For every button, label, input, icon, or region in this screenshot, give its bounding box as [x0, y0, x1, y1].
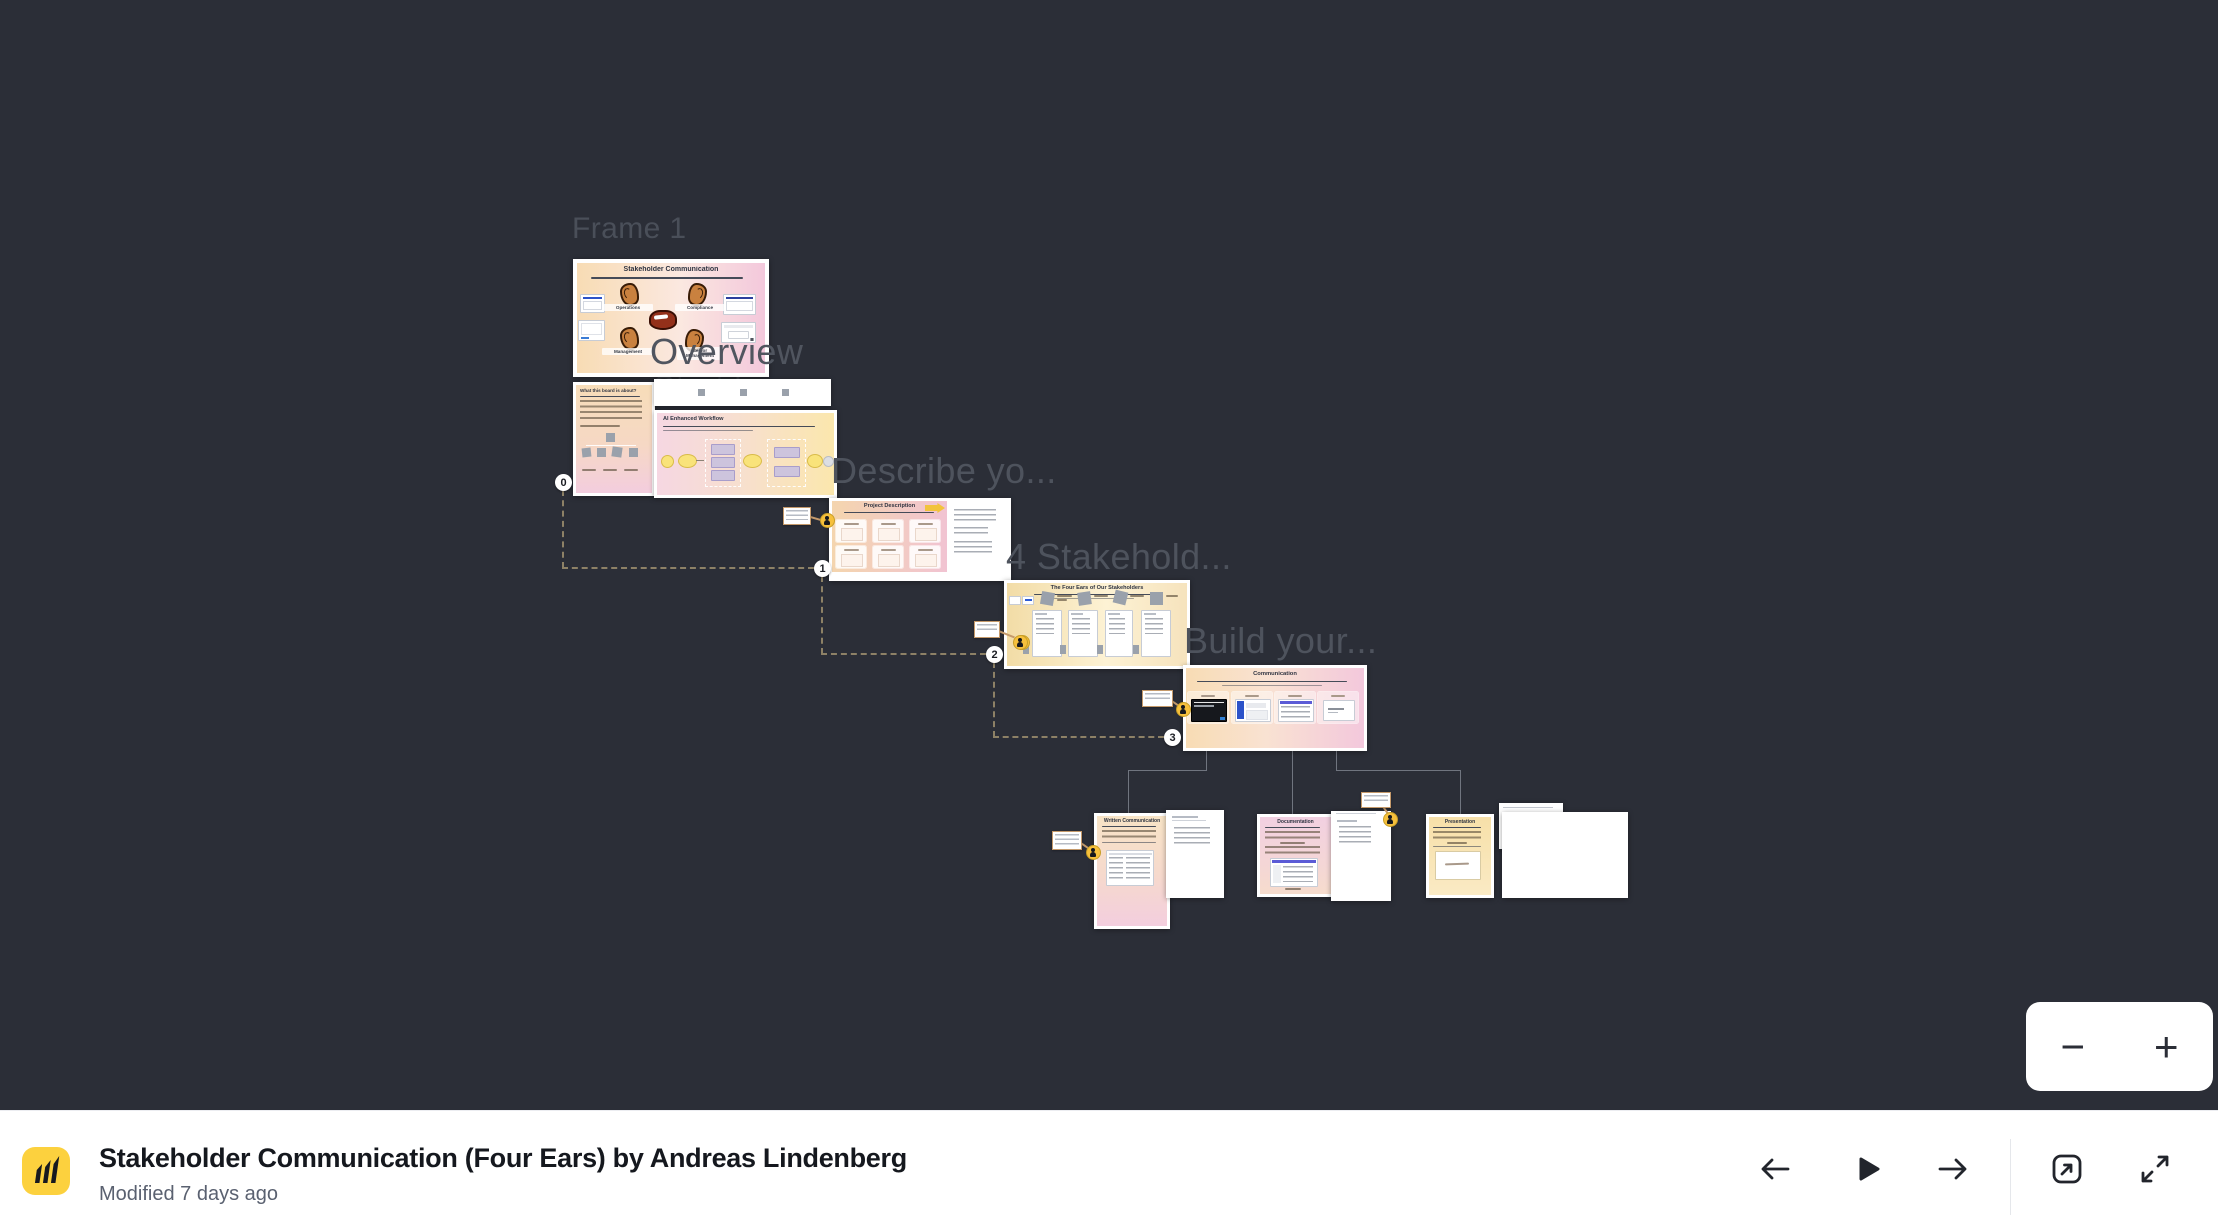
- previous-frame-button[interactable]: [1757, 1151, 1793, 1187]
- sticky-note[interactable]: [1361, 792, 1391, 808]
- tool-panel: [1188, 692, 1228, 723]
- text-lines: [954, 509, 996, 523]
- dashed-connector-2: [993, 662, 995, 737]
- text-lines: [954, 541, 992, 553]
- worksheet-card: [1068, 610, 1098, 657]
- window-thumbnail: [578, 320, 605, 341]
- text-lines: [1174, 827, 1210, 847]
- board-title: Documentation: [1260, 819, 1331, 825]
- text-line: [603, 469, 617, 471]
- sticker-square: [1113, 590, 1129, 606]
- board-title-text: Stakeholder Communication (Four Ears) by…: [99, 1143, 907, 1174]
- frame-label-overview: Overview: [650, 331, 803, 373]
- board-workflow[interactable]: AI Enhanced Workflow: [654, 410, 837, 498]
- sticker-square: [1097, 645, 1103, 654]
- title-rule: [1197, 681, 1347, 682]
- org-node: [629, 448, 638, 457]
- text-line: [1337, 820, 1357, 822]
- tool-panel: [1318, 692, 1358, 723]
- mini-toolbar-board[interactable]: [654, 379, 831, 406]
- tree-connector: [1460, 770, 1461, 814]
- text-line: [1447, 842, 1467, 844]
- org-node: [597, 448, 606, 457]
- app-window-thumbnail: [1270, 858, 1318, 887]
- title-rule: [1102, 826, 1156, 827]
- text-line: [1166, 595, 1178, 597]
- board-four-ears[interactable]: The Four Ears of Our Stakeholders: [1004, 580, 1190, 669]
- toolbar-square: [782, 389, 789, 396]
- notes-card[interactable]: [1166, 810, 1224, 898]
- board-title: AI Enhanced Workflow: [663, 416, 724, 422]
- text-line: [582, 469, 596, 471]
- title-rule: [591, 277, 743, 279]
- ear-illustration: [688, 283, 707, 306]
- title-rule: [1265, 827, 1320, 828]
- title-rule: [1433, 827, 1481, 828]
- browser-icon: [1022, 596, 1034, 605]
- flow-node: [807, 454, 823, 468]
- ear-label-compliance: Compliance: [675, 304, 725, 311]
- zoom-controls: − +: [2026, 1002, 2213, 1091]
- title-rule: [1433, 846, 1481, 847]
- text-line: [1172, 816, 1198, 818]
- dashed-connector-0: [562, 490, 564, 568]
- text-line: [1057, 599, 1067, 601]
- open-in-miro-button[interactable]: [2049, 1151, 2085, 1187]
- toolbar-square: [740, 389, 747, 396]
- tree-connector: [1336, 770, 1461, 771]
- ear-illustration: [620, 327, 639, 350]
- dashed-connector-0b: [562, 567, 814, 569]
- toolbar-divider: [2010, 1139, 2011, 1215]
- text-line: [1336, 813, 1376, 814]
- frame-label-describe: Describe yo...: [831, 450, 1057, 492]
- board-presentation[interactable]: Presentation: [1426, 814, 1494, 898]
- template-card: [836, 546, 866, 568]
- board-canvas[interactable]: Frame 1 Overview Start here Describe yo.…: [0, 0, 2218, 1110]
- table-thumbnail: [1106, 850, 1154, 886]
- ear-label-operations: Operations: [603, 304, 653, 311]
- notes-card[interactable]: [1331, 811, 1391, 901]
- facilitator-marker[interactable]: [1086, 845, 1101, 860]
- frame-label-stakeholders: 4 Stakehold...: [1006, 536, 1232, 578]
- text-line: [1094, 595, 1108, 597]
- title-rule: [580, 396, 640, 397]
- bottom-bar: Stakeholder Communication (Four Ears) by…: [0, 1110, 2218, 1228]
- worksheet-card: [1105, 610, 1133, 657]
- title-rule: [1222, 685, 1322, 686]
- template-card: [836, 520, 866, 542]
- slide-thumbnail: [1435, 851, 1481, 880]
- text-line: [1280, 842, 1305, 844]
- window-thumbnail: [723, 294, 756, 315]
- org-node: [611, 446, 622, 457]
- worksheet-card: [1141, 610, 1171, 657]
- play-presentation-button[interactable]: [1850, 1151, 1886, 1187]
- title-rule: [1102, 842, 1156, 843]
- sticker-square: [1060, 645, 1066, 654]
- sticker-square: [1040, 591, 1055, 606]
- sticker-square: [1133, 645, 1139, 654]
- text-line: [1503, 807, 1553, 808]
- step-marker-2[interactable]: 2: [986, 646, 1003, 663]
- sticky-note[interactable]: [1142, 690, 1173, 707]
- mouth-illustration: [649, 310, 677, 330]
- flow-group: [767, 439, 806, 487]
- dashed-connector-2b: [993, 736, 1164, 738]
- sticker-square: [1150, 592, 1163, 605]
- miro-logo[interactable]: [22, 1147, 70, 1195]
- board-communication[interactable]: Communication: [1183, 665, 1367, 751]
- worksheet-card: [1032, 610, 1062, 657]
- text-lines: [580, 400, 642, 422]
- frame-label-build: Build your...: [1184, 620, 1377, 662]
- facilitator-marker[interactable]: [1383, 812, 1398, 827]
- next-frame-button[interactable]: [1935, 1151, 1971, 1187]
- tool-panel: [1232, 692, 1272, 723]
- template-card: [873, 546, 903, 568]
- template-card: [910, 520, 940, 542]
- frame-label-frame1: Frame 1: [572, 212, 687, 246]
- text-lines: [1102, 830, 1156, 838]
- text-line: [1285, 888, 1301, 890]
- board-title: Stakeholder Communication: [577, 266, 765, 273]
- flow-node-start: [661, 455, 674, 468]
- template-card: [873, 520, 903, 542]
- ear-label-management: Management: [602, 348, 654, 355]
- dashed-connector-1: [821, 576, 823, 654]
- window-thumbnail: [580, 294, 605, 313]
- text-lines: [1265, 831, 1320, 839]
- flow-group: [705, 439, 741, 487]
- template-card: [910, 546, 940, 568]
- board-project-description[interactable]: Project Description: [829, 498, 1011, 581]
- ear-illustration: [620, 283, 639, 306]
- facilitator-marker[interactable]: [1013, 635, 1028, 650]
- dashed-connector-1b: [821, 653, 986, 655]
- board-title: The Four Ears of Our Stakeholders: [1007, 585, 1187, 591]
- org-root-node: [606, 433, 615, 442]
- facilitator-marker[interactable]: [820, 513, 835, 528]
- org-node: [582, 448, 592, 458]
- tree-connector: [1128, 770, 1207, 771]
- text-lines: [1265, 846, 1320, 854]
- board-documentation[interactable]: Documentation: [1257, 814, 1334, 897]
- facilitator-marker[interactable]: [1176, 702, 1191, 717]
- flow-node: [743, 454, 762, 468]
- miro-board-viewer: Frame 1 Overview Start here Describe yo.…: [0, 0, 2218, 1228]
- text-line: [1130, 595, 1144, 597]
- title-rule: [663, 426, 815, 427]
- toolbar-square: [698, 389, 705, 396]
- text-lines: [1339, 826, 1371, 844]
- board-about[interactable]: What this board is about?: [573, 382, 655, 496]
- text-lines: [954, 527, 988, 537]
- tree-connector: [1128, 770, 1129, 813]
- sticker-square: [1077, 591, 1092, 606]
- step-marker-0[interactable]: 0: [555, 474, 572, 491]
- sticky-note[interactable]: [974, 621, 1000, 638]
- tree-connector: [1292, 744, 1293, 814]
- text-line: [1057, 595, 1072, 597]
- board-title: Written Communication: [1097, 818, 1167, 824]
- title-rule: [663, 430, 753, 431]
- tool-panel: [1275, 692, 1315, 723]
- modified-timestamp: Modified 7 days ago: [99, 1183, 278, 1206]
- board-title: What this board is about?: [580, 388, 636, 393]
- text-line: [1172, 820, 1206, 821]
- sticky-note[interactable]: [1052, 831, 1082, 850]
- zoom-out-button[interactable]: −: [2038, 1012, 2108, 1082]
- white-board-front[interactable]: [1502, 812, 1628, 898]
- list-icon: [1009, 596, 1021, 605]
- board-title: Presentation: [1429, 819, 1491, 825]
- board-title: Communication: [1186, 671, 1364, 677]
- board-written-communication[interactable]: Written Communication: [1094, 813, 1170, 929]
- zoom-in-button[interactable]: +: [2131, 1012, 2201, 1082]
- text-line: [624, 469, 638, 471]
- org-branch-line: [586, 445, 636, 446]
- flow-arrow: [696, 460, 704, 461]
- flow-node: [678, 454, 697, 468]
- sticky-note[interactable]: [783, 507, 811, 525]
- text-lines: [1433, 831, 1481, 839]
- step-marker-1[interactable]: 1: [814, 560, 831, 577]
- fullscreen-button[interactable]: [2137, 1151, 2173, 1187]
- text-line: [580, 425, 620, 427]
- step-marker-3[interactable]: 3: [1164, 729, 1181, 746]
